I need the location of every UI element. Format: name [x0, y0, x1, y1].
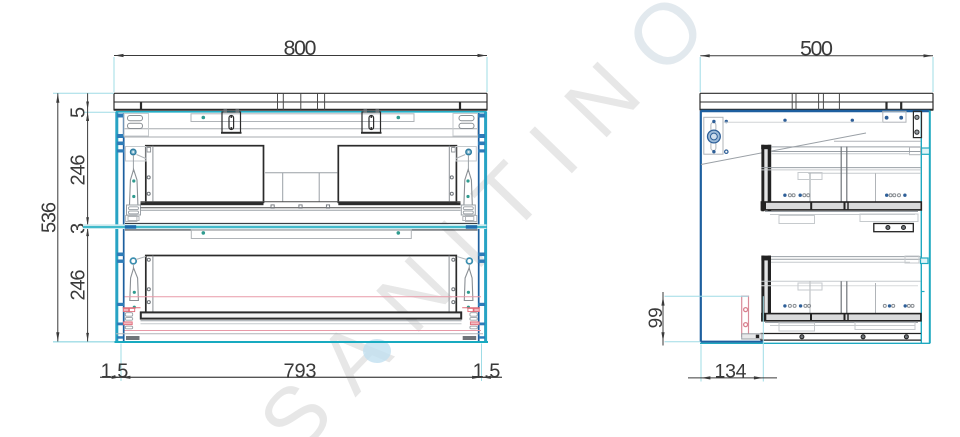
svg-text:1.5: 1.5: [473, 361, 501, 383]
svg-text:536: 536: [39, 202, 61, 233]
svg-text:800: 800: [284, 36, 317, 60]
svg-text:793: 793: [284, 361, 317, 383]
svg-text:1.5: 1.5: [101, 361, 129, 383]
svg-text:99: 99: [646, 307, 667, 328]
svg-text:5: 5: [68, 107, 90, 118]
svg-text:134: 134: [715, 360, 747, 382]
svg-text:246: 246: [68, 155, 90, 186]
svg-text:246: 246: [68, 270, 90, 301]
svg-text:500: 500: [800, 36, 833, 60]
